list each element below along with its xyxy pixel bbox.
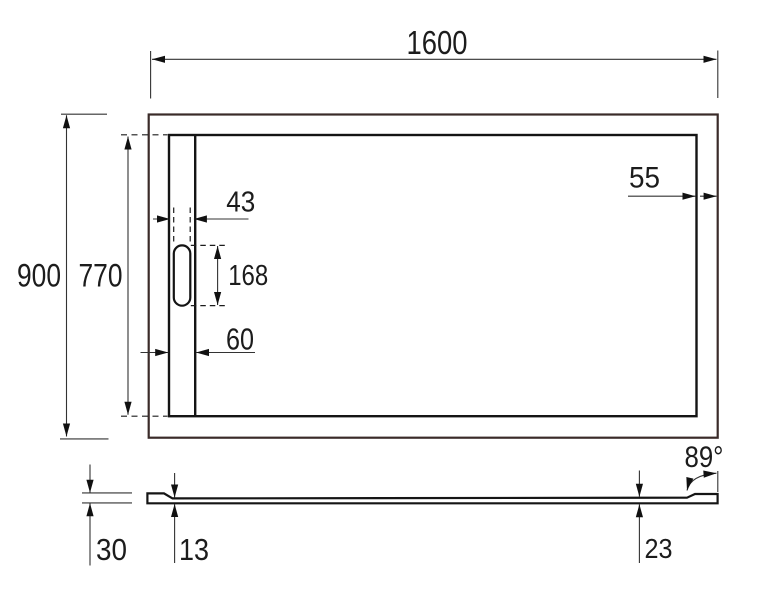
svg-text:43: 43 — [226, 187, 255, 219]
svg-text:168: 168 — [228, 260, 268, 292]
svg-text:30: 30 — [96, 532, 127, 567]
svg-text:89°: 89° — [685, 441, 724, 474]
svg-text:60: 60 — [226, 322, 254, 357]
svg-text:23: 23 — [645, 533, 673, 564]
svg-text:55: 55 — [629, 162, 660, 195]
svg-text:770: 770 — [79, 258, 123, 294]
svg-text:1600: 1600 — [407, 24, 468, 61]
svg-text:900: 900 — [17, 258, 61, 294]
svg-text:13: 13 — [179, 532, 209, 567]
